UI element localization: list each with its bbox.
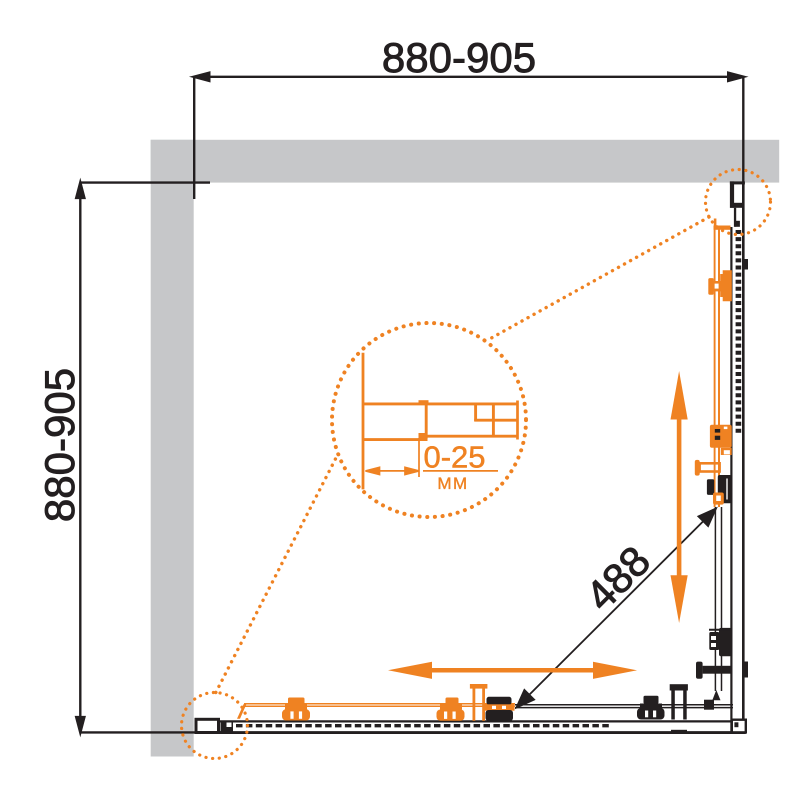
svg-text:880-905: 880-905 [382, 34, 536, 81]
svg-text:ММ: ММ [437, 474, 468, 493]
svg-text:0-25: 0-25 [423, 440, 485, 475]
svg-text:880-905: 880-905 [36, 368, 83, 522]
